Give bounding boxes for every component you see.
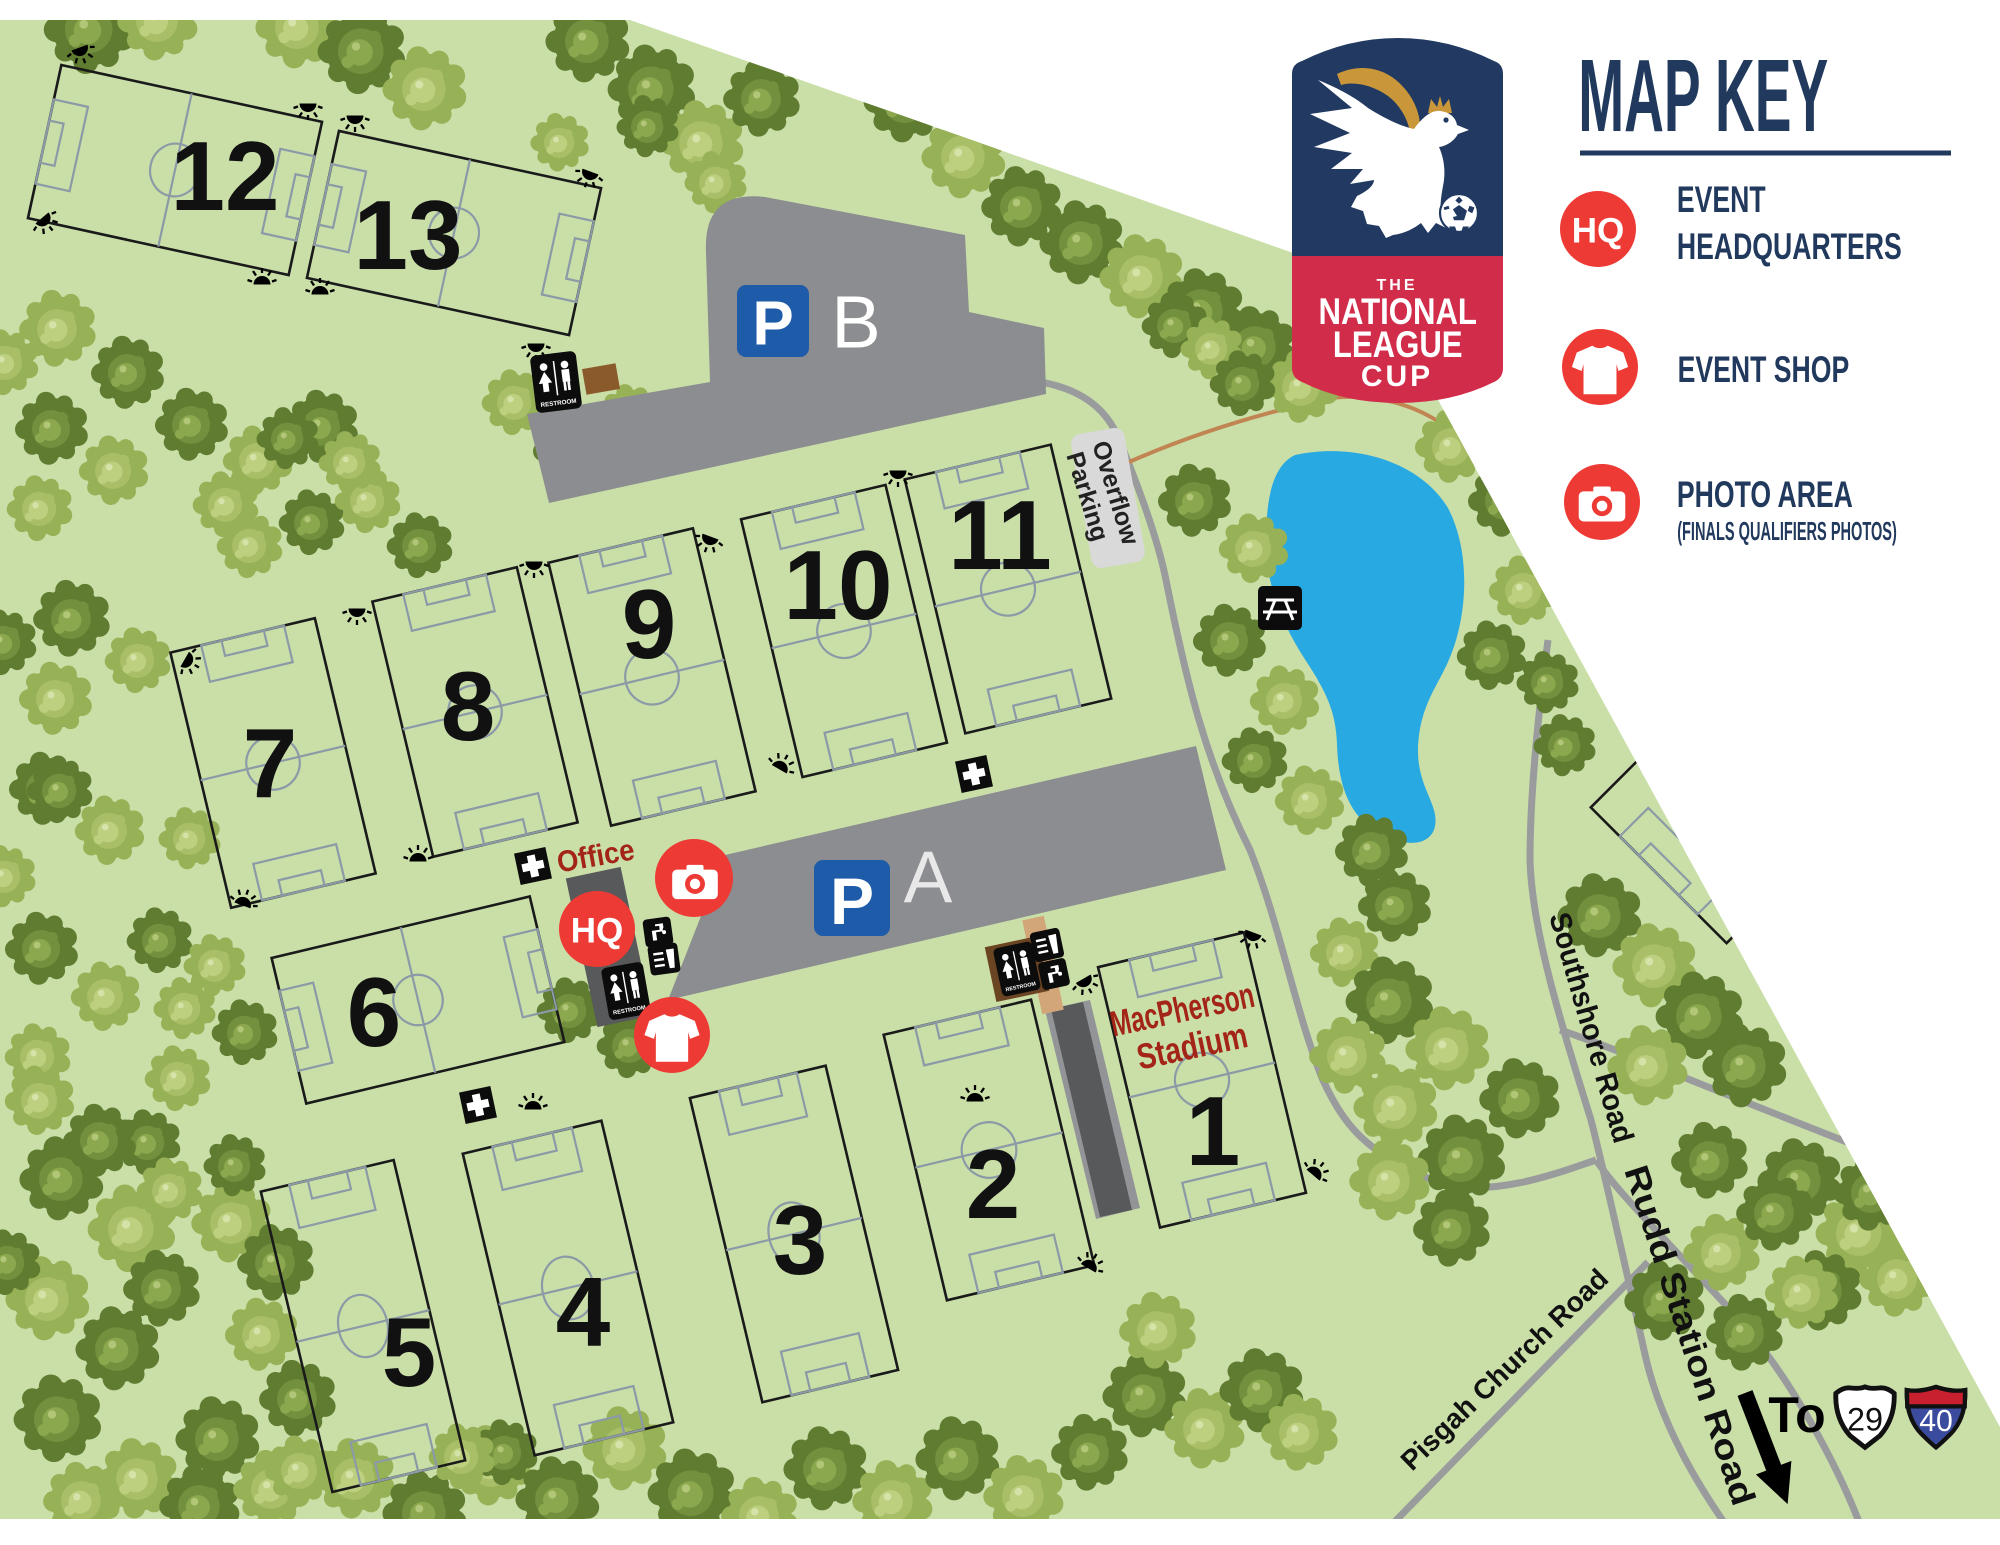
svg-text:HQ: HQ <box>1572 212 1625 251</box>
svg-text:P: P <box>830 864 874 938</box>
svg-text:PHOTO AREA: PHOTO AREA <box>1677 474 1853 515</box>
svg-text:29: 29 <box>1847 1401 1883 1437</box>
svg-text:HEADQUARTERS: HEADQUARTERS <box>1677 226 1902 267</box>
svg-text:10: 10 <box>783 530 892 640</box>
svg-text:P: P <box>752 290 793 359</box>
svg-text:To: To <box>1768 1387 1825 1443</box>
svg-text:6: 6 <box>347 957 402 1067</box>
svg-text:EVENT SHOP: EVENT SHOP <box>1678 349 1850 390</box>
svg-text:(FINALS QUALIFIERS PHOTOS): (FINALS QUALIFIERS PHOTOS) <box>1677 518 1897 546</box>
svg-text:12: 12 <box>170 121 279 231</box>
svg-text:13: 13 <box>353 180 462 290</box>
svg-text:1: 1 <box>1186 1076 1241 1186</box>
svg-text:8: 8 <box>441 651 496 761</box>
svg-text:B: B <box>831 281 880 364</box>
svg-text:9: 9 <box>622 569 677 679</box>
svg-text:2: 2 <box>966 1129 1021 1239</box>
svg-text:CUP: CUP <box>1361 360 1433 393</box>
svg-text:11: 11 <box>948 480 1052 590</box>
svg-text:EVENT: EVENT <box>1677 179 1766 220</box>
svg-text:HQ: HQ <box>571 912 624 951</box>
svg-text:7: 7 <box>243 708 298 818</box>
svg-text:A: A <box>904 838 953 919</box>
svg-text:5: 5 <box>382 1297 437 1407</box>
svg-text:MAP KEY: MAP KEY <box>1578 37 1828 153</box>
svg-text:3: 3 <box>773 1185 828 1295</box>
svg-text:4: 4 <box>556 1257 611 1367</box>
svg-text:40: 40 <box>1919 1405 1953 1438</box>
